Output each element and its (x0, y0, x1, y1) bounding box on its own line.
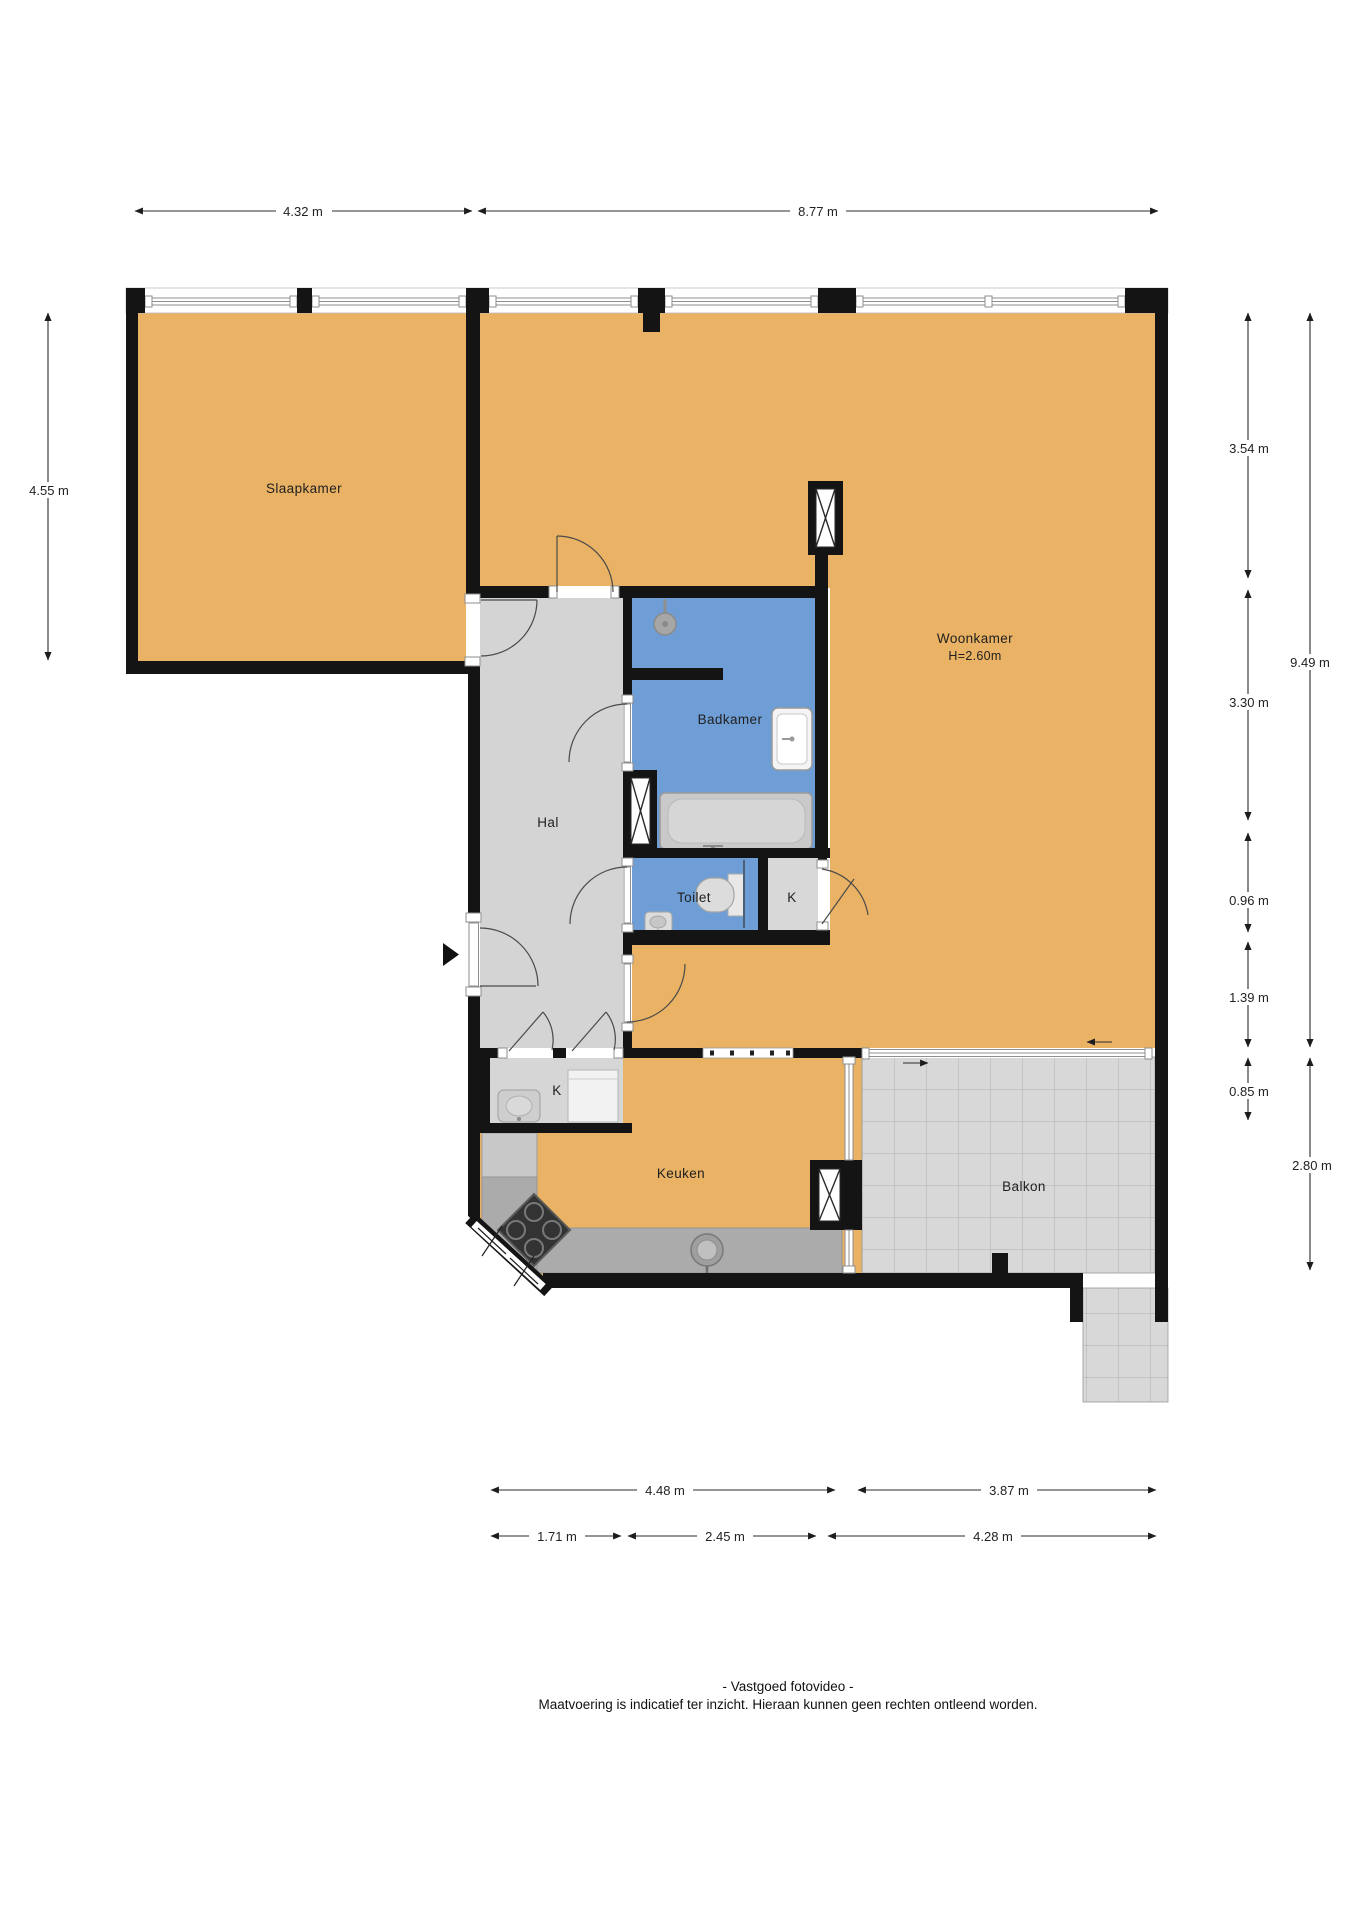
appliance-icon (568, 1070, 618, 1122)
dim-top-2: 8.77 m (798, 204, 838, 219)
closet-lower-west-wall (480, 1058, 490, 1133)
window (312, 296, 466, 307)
footer-line-1: - Vastgoed fotovideo - (722, 1679, 853, 1694)
shaft-icon (810, 1160, 862, 1230)
dim-bottom-upper-1: 4.48 m (645, 1483, 685, 1498)
label-hal: Hal (537, 815, 558, 830)
room-balkon (862, 1057, 1155, 1273)
boiler-icon (498, 1090, 540, 1122)
dim-bottom-lower-1: 1.71 m (537, 1529, 577, 1544)
dim-bottom-upper-2: 3.87 m (989, 1483, 1029, 1498)
window (489, 296, 638, 307)
balkon-sliding-window (862, 1048, 1152, 1059)
window (145, 296, 297, 307)
dim-right-2: 3.30 m (1229, 695, 1269, 710)
label-badkamer: Badkamer (698, 712, 763, 727)
window (856, 296, 1125, 307)
outer-wall-right (1155, 288, 1168, 1322)
dim-right-outer-1: 9.49 m (1290, 655, 1330, 670)
dim-right-5: 0.85 m (1229, 1084, 1269, 1099)
label-closet-upper: K (787, 890, 796, 905)
floor-plan-svg: Slaapkamer Woonkamer H=2.60m Badkamer Ha… (0, 0, 1358, 1920)
label-closet-lower: K (552, 1083, 561, 1098)
dim-bottom-lower-2: 2.45 m (705, 1529, 745, 1544)
label-balkon: Balkon (1002, 1179, 1046, 1194)
cabinet-icon (482, 1133, 537, 1177)
label-woonkamer-height: H=2.60m (948, 649, 1001, 663)
balkon-step-wall (1070, 1273, 1083, 1322)
dim-right-1: 3.54 m (1229, 441, 1269, 456)
dim-top-1: 4.32 m (283, 204, 323, 219)
window (665, 296, 818, 307)
label-slaapkamer: Slaapkamer (266, 481, 342, 496)
top-windows (145, 296, 1125, 307)
washbasin-icon (772, 708, 812, 770)
toilet-south-wall (623, 930, 830, 945)
outer-wall-left-bedroom (126, 313, 138, 674)
label-keuken: Keuken (657, 1166, 705, 1181)
shaft-icon (624, 770, 657, 852)
toilet-closet-wall (758, 858, 768, 930)
dim-right-4: 1.39 m (1229, 990, 1269, 1005)
floor-plan-page: Slaapkamer Woonkamer H=2.60m Badkamer Ha… (0, 0, 1358, 1920)
dim-right-outer-2: 2.80 m (1292, 1158, 1332, 1173)
bathtub-icon (660, 793, 812, 852)
dim-left-1: 4.55 m (29, 483, 69, 498)
label-toilet: Toilet (677, 890, 711, 905)
entrance-arrow-icon (443, 943, 459, 966)
kitchen-pass-opening (703, 1048, 793, 1058)
bedroom-south-wall (126, 661, 480, 674)
outer-wall-bottom (543, 1273, 1083, 1288)
shower-partition-wall (628, 668, 723, 680)
label-woonkamer: Woonkamer (937, 631, 1013, 646)
closet-lower-south-wall (480, 1123, 632, 1133)
counter-bottom (537, 1228, 842, 1273)
footer-line-2: Maatvoering is indicatief ter inzicht. H… (538, 1697, 1037, 1712)
bathroom-east-wall (815, 555, 828, 848)
dim-bottom-lower-3: 4.28 m (973, 1529, 1013, 1544)
pier-stub (643, 313, 660, 332)
balkon-divider-stub (992, 1253, 1008, 1273)
dim-right-3: 0.96 m (1229, 893, 1269, 908)
hall-bathroom-north-wall (480, 586, 825, 598)
shaft-icon (808, 481, 843, 555)
footer: - Vastgoed fotovideo - Maatvoering is in… (538, 1679, 1037, 1712)
